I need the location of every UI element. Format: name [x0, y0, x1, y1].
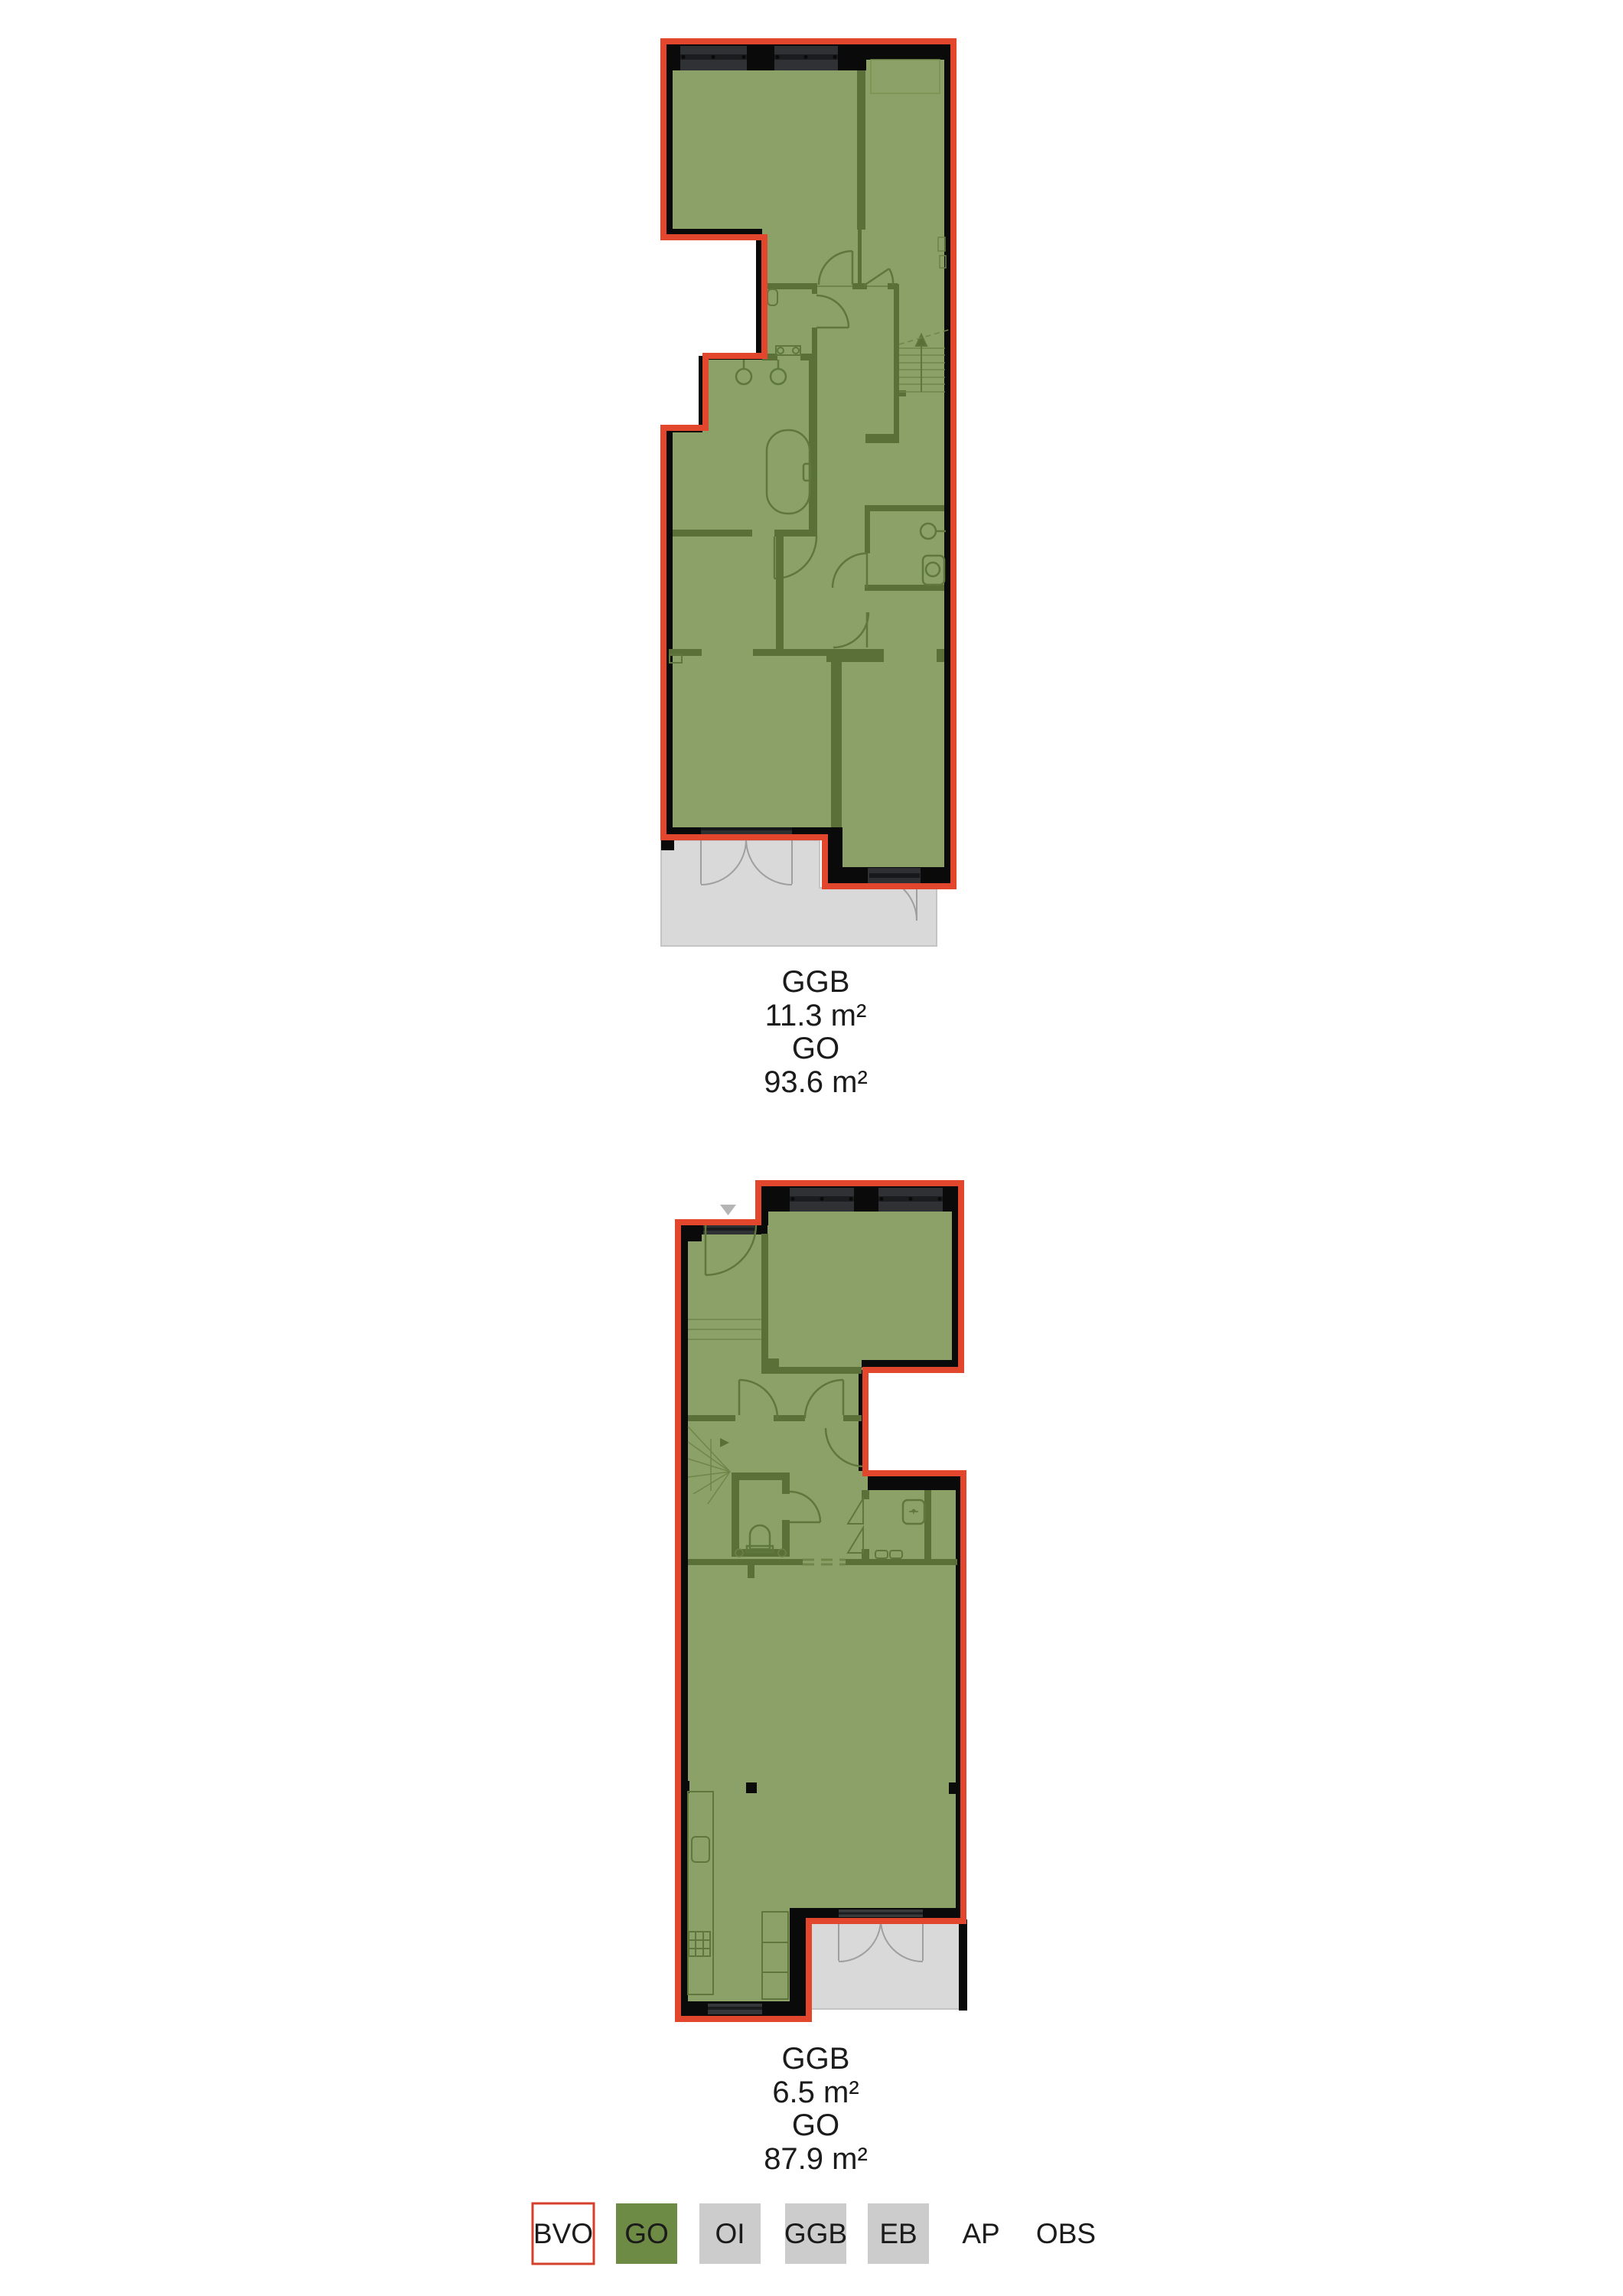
svg-text:6.5 m²: 6.5 m²	[772, 2076, 859, 2109]
svg-text:GO: GO	[624, 2218, 669, 2249]
svg-text:11.3 m²: 11.3 m²	[765, 999, 867, 1032]
svg-text:93.6 m²: 93.6 m²	[764, 1065, 868, 1099]
svg-text:OI: OI	[715, 2218, 745, 2249]
svg-text:EB: EB	[879, 2218, 917, 2249]
svg-text:BVO: BVO	[533, 2218, 593, 2249]
svg-text:GGB: GGB	[784, 2218, 847, 2249]
svg-text:GGB: GGB	[782, 2042, 850, 2076]
svg-text:AP: AP	[962, 2218, 999, 2249]
svg-text:GO: GO	[792, 1032, 839, 1065]
svg-text:GO: GO	[792, 2108, 839, 2142]
svg-text:87.9 m²: 87.9 m²	[764, 2142, 868, 2176]
svg-text:GGB: GGB	[782, 965, 850, 999]
svg-text:OBS: OBS	[1036, 2218, 1096, 2249]
